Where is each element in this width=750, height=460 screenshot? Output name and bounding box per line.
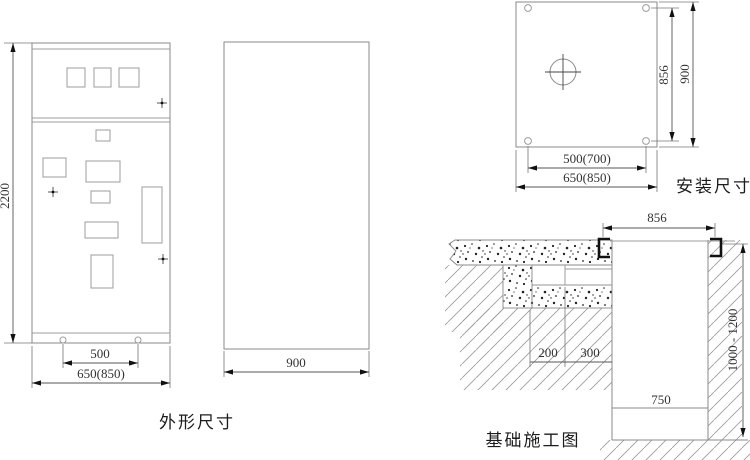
dim-label-side-depth: 900 [286, 355, 306, 370]
dim-label-install-height: 900 [677, 64, 692, 84]
dim-label-pit-depth: 1000 - 1200 [725, 309, 740, 372]
arrow-left-icon [32, 380, 41, 385]
arrow-left-icon [224, 369, 233, 374]
dimension-side-depth: 900 [224, 351, 369, 377]
foundation-view: 750 856 200 300 1000 - 1200 [445, 210, 750, 460]
front-panel-cutout-1 [96, 130, 110, 141]
arrow-left-icon [516, 184, 525, 189]
mounting-hole [643, 5, 650, 12]
meter-window-2 [94, 68, 111, 87]
mounting-plate-outline [516, 2, 657, 147]
anchor-hole-left [60, 337, 66, 343]
arrow-left-icon [63, 360, 72, 365]
dim-label-front-height: 2200 [0, 183, 12, 209]
front-panel-handle-slot [142, 187, 162, 243]
arrow-right-icon [648, 184, 657, 189]
drawing-svg: 2200 500 650(850) 外形尺寸 [0, 0, 750, 460]
dimension-install-hole-vspan: 856 [651, 8, 679, 141]
dim-label-front-width: 650(850) [77, 366, 125, 381]
dimension-front-height: 2200 [0, 43, 32, 343]
dim-label-pit-width: 750 [651, 392, 671, 407]
mounting-hole [525, 5, 532, 12]
meter-window-3 [119, 68, 139, 87]
front-view: 2200 500 650(850) 外形尺寸 [0, 43, 235, 432]
engineering-drawing-sheet: 2200 500 650(850) 外形尺寸 [0, 0, 750, 460]
install-view: 856 900 500(700) 650(850) [516, 2, 750, 196]
dim-label-install-hole-hspan: 500(700) [563, 151, 611, 166]
concrete-top-slab [449, 240, 612, 265]
dim-label-channel-span: 856 [647, 210, 667, 225]
arrow-down-icon [10, 334, 15, 343]
soil-hatch-bottom [600, 440, 750, 460]
dim-label-front-hole-span: 500 [90, 346, 110, 361]
dim-label-install-width: 650(850) [563, 170, 611, 185]
arrow-up-icon [690, 2, 695, 11]
arrow-down-icon [690, 138, 695, 147]
arrow-up-icon [669, 8, 674, 17]
alignment-cross-icon [157, 98, 167, 108]
arrow-left-icon [603, 225, 612, 230]
front-panel-cutout-4 [91, 191, 110, 203]
foundation-view-caption: 基础施工图 [486, 431, 581, 450]
arrow-down-icon [669, 132, 674, 141]
cable-entry-hole [545, 54, 581, 90]
arrow-right-icon [706, 225, 715, 230]
install-view-caption: 安装尺寸 [676, 177, 750, 196]
front-panel-cutout-6 [91, 255, 113, 288]
side-view: 900 [224, 42, 369, 377]
arrow-right-icon [360, 369, 369, 374]
dim-label-duct-width: 200 [538, 345, 558, 360]
front-panel-cutout-3 [86, 161, 120, 182]
concrete-column [503, 265, 532, 308]
mounting-hole [643, 138, 650, 145]
arrow-up-icon [10, 43, 15, 52]
dimension-install-hole-hspan: 500(700) [528, 146, 646, 173]
mounting-hole [525, 138, 532, 145]
dimension-foundation-channel-span: 856 [603, 210, 715, 237]
arrow-right-icon [637, 165, 646, 170]
dimension-front-hole-span: 500 [63, 344, 138, 368]
anchor-hole-right [135, 337, 141, 343]
concrete-lower-band [532, 285, 612, 308]
arrow-right-icon [129, 360, 138, 365]
front-view-caption: 外形尺寸 [159, 413, 235, 432]
alignment-cross-icon [48, 187, 58, 197]
alignment-cross-icon [158, 254, 168, 264]
cabinet-side-outline [224, 42, 369, 349]
arrow-right-icon [161, 380, 170, 385]
arrow-left-icon [528, 165, 537, 170]
front-panel-cutout-5 [85, 222, 118, 238]
front-panel-cutout-2 [43, 158, 66, 177]
dim-label-ledge-width: 300 [580, 345, 600, 360]
meter-window-1 [67, 68, 85, 87]
dim-label-install-hole-vspan: 856 [656, 65, 671, 85]
